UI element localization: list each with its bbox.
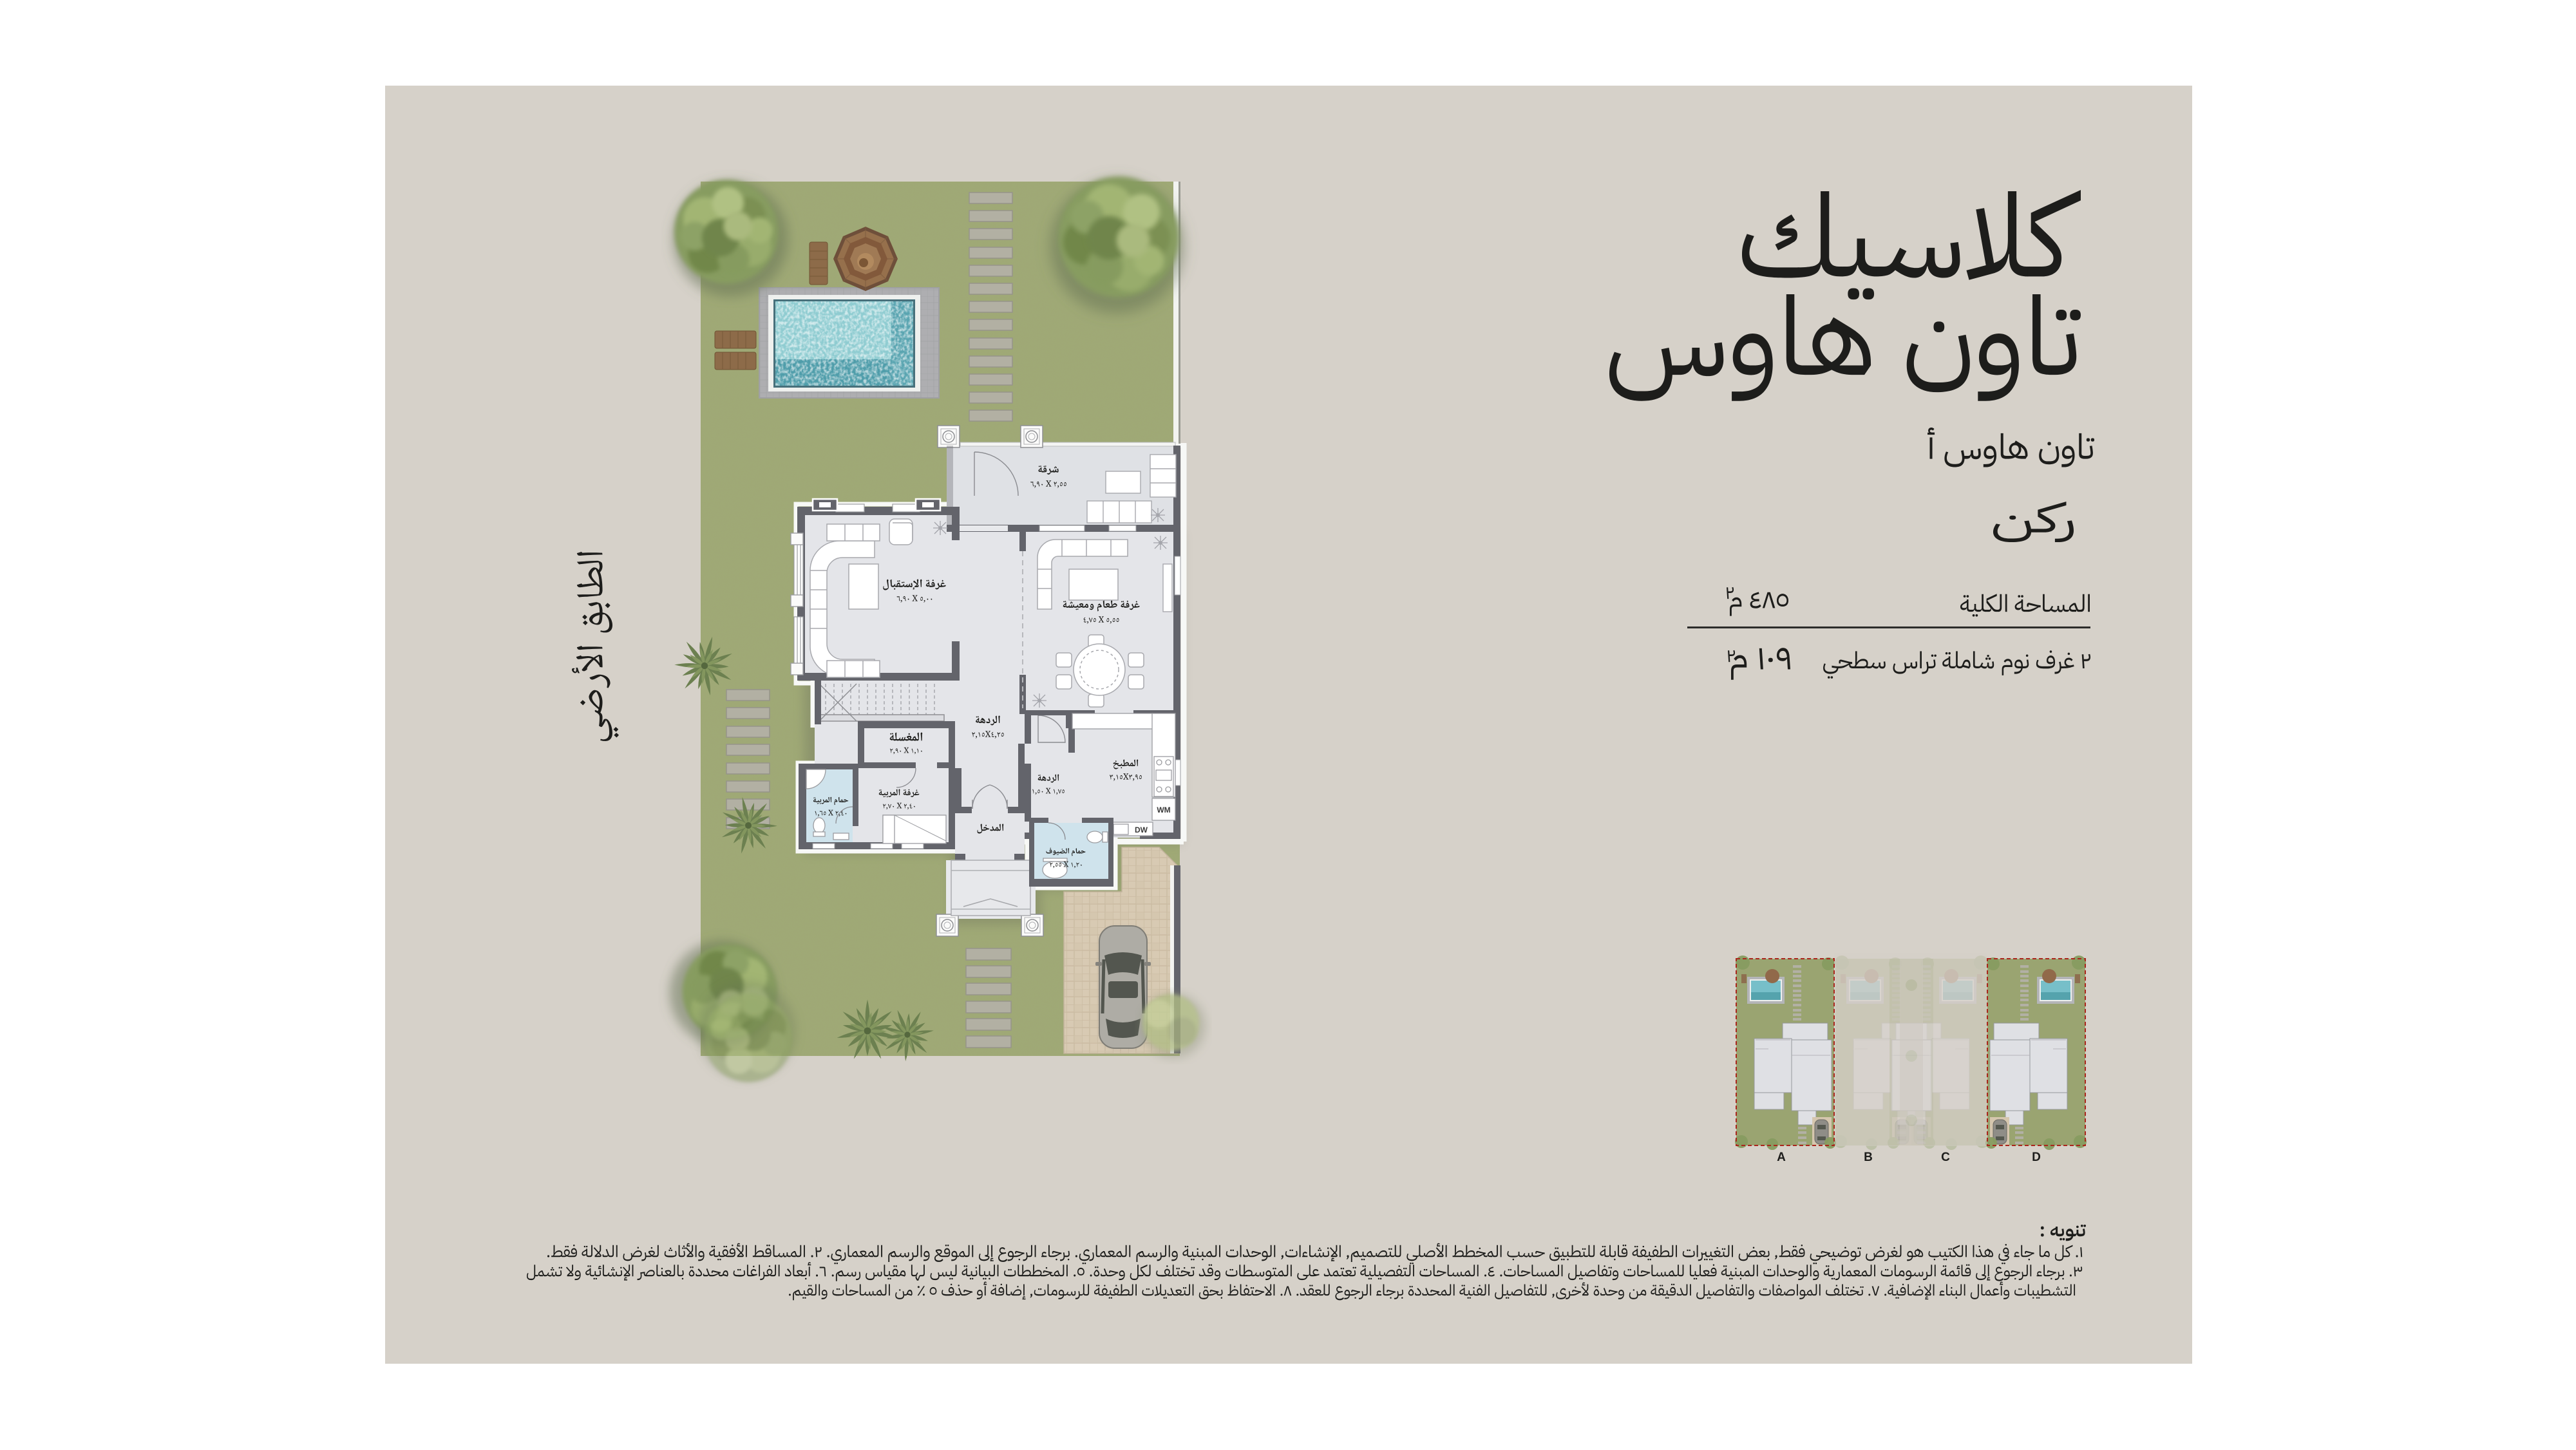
svg-text:A: A [1777, 1151, 1786, 1164]
svg-text:B: B [1864, 1151, 1873, 1164]
svg-text:C: C [1941, 1151, 1950, 1164]
svg-text:WM: WM [1157, 805, 1170, 814]
svg-text:DW: DW [1135, 825, 1148, 834]
svg-text:D: D [2032, 1151, 2041, 1164]
